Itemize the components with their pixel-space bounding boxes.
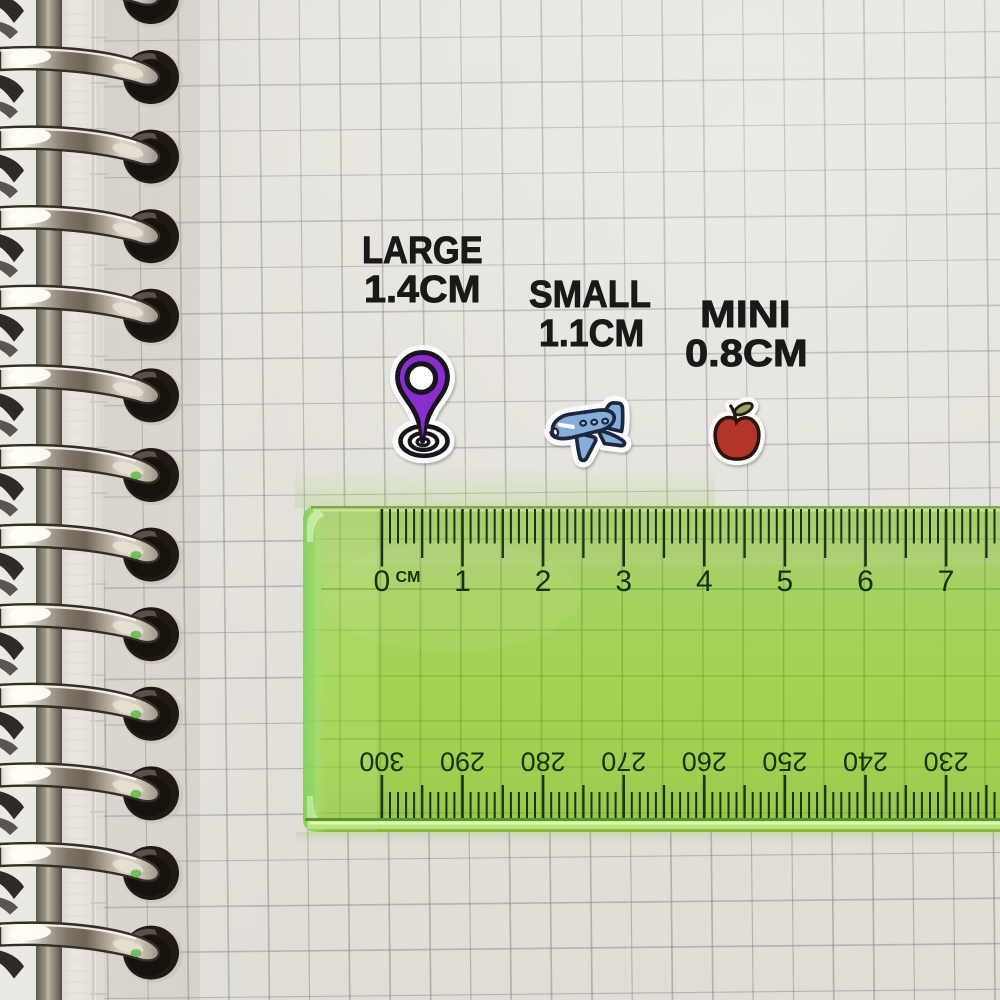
svg-text:3: 3 — [615, 565, 632, 598]
svg-text:CM: CM — [396, 569, 421, 586]
svg-text:5: 5 — [777, 565, 794, 598]
svg-text:1: 1 — [454, 565, 471, 598]
svg-text:290: 290 — [440, 747, 485, 777]
svg-text:6: 6 — [857, 565, 874, 598]
svg-text:0: 0 — [374, 565, 391, 598]
svg-text:2: 2 — [535, 565, 552, 598]
svg-text:260: 260 — [682, 747, 727, 777]
svg-text:240: 240 — [843, 747, 888, 777]
svg-text:280: 280 — [521, 747, 566, 777]
svg-text:300: 300 — [359, 747, 404, 777]
svg-text:250: 250 — [762, 747, 807, 777]
svg-text:4: 4 — [696, 565, 713, 598]
svg-text:270: 270 — [601, 747, 646, 777]
svg-text:7: 7 — [938, 565, 955, 598]
svg-text:230: 230 — [924, 747, 969, 777]
